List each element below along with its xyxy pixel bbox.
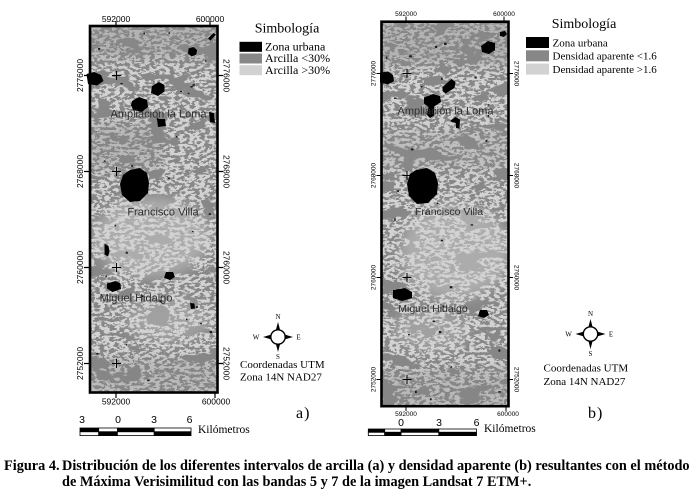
svg-text:Francisco Villa: Francisco Villa (127, 207, 199, 219)
svg-text:Coordenadas UTM: Coordenadas UTM (544, 363, 629, 375)
svg-text:2768000: 2768000 (75, 155, 85, 188)
svg-text:2752000: 2752000 (513, 367, 520, 393)
svg-text:592000: 592000 (102, 397, 131, 407)
svg-text:Coordenadas UTM: Coordenadas UTM (240, 359, 325, 371)
svg-text:2760000: 2760000 (513, 265, 520, 291)
svg-text:W: W (253, 334, 260, 342)
svg-text:Kilómetros: Kilómetros (484, 423, 536, 435)
svg-text:Simbología: Simbología (255, 22, 320, 37)
svg-text:N: N (588, 310, 593, 318)
svg-text:Zona 14N NAD27: Zona 14N NAD27 (544, 376, 626, 388)
svg-text:600000: 600000 (202, 397, 231, 407)
svg-text:b): b) (588, 405, 603, 422)
svg-text:2768000: 2768000 (371, 162, 378, 188)
svg-text:0: 0 (115, 414, 121, 426)
svg-text:2760000: 2760000 (371, 264, 378, 290)
svg-text:E: E (296, 334, 300, 342)
svg-text:3: 3 (436, 417, 442, 429)
svg-text:2752000: 2752000 (75, 347, 85, 380)
svg-text:2776000: 2776000 (371, 60, 378, 86)
svg-text:Zona urbana: Zona urbana (553, 37, 608, 49)
svg-text:2760000: 2760000 (75, 251, 85, 284)
svg-text:W: W (565, 331, 572, 339)
svg-text:Miguel Hidalgo: Miguel Hidalgo (398, 303, 468, 315)
svg-text:3: 3 (151, 414, 157, 426)
svg-text:E: E (609, 331, 613, 339)
svg-text:a): a) (296, 405, 310, 422)
svg-text:Ampliación la Loma: Ampliación la Loma (111, 109, 208, 121)
svg-text:Francisco Villa: Francisco Villa (415, 206, 483, 218)
svg-text:600000: 600000 (493, 11, 515, 18)
svg-text:2768000: 2768000 (222, 155, 232, 188)
svg-text:Densidad aparente <1.6: Densidad aparente <1.6 (553, 51, 658, 63)
svg-text:2776000: 2776000 (222, 59, 232, 92)
svg-text:2760000: 2760000 (222, 251, 232, 284)
svg-text:0: 0 (398, 417, 404, 429)
svg-text:600000: 600000 (196, 14, 225, 24)
svg-text:N: N (275, 313, 280, 321)
svg-text:Kilómetros: Kilómetros (198, 424, 250, 436)
svg-text:6: 6 (474, 417, 480, 429)
svg-text:Simbología: Simbología (552, 17, 617, 32)
svg-text:S: S (589, 350, 593, 358)
svg-text:Densidad aparente >1.6: Densidad aparente >1.6 (553, 64, 658, 76)
svg-text:Ampliación la Loma: Ampliación la Loma (398, 106, 495, 118)
svg-text:592000: 592000 (395, 11, 417, 18)
svg-text:Miguel Hidalgo: Miguel Hidalgo (100, 293, 173, 305)
svg-text:3: 3 (79, 414, 85, 426)
svg-text:Zona 14N NAD27: Zona 14N NAD27 (240, 372, 322, 384)
svg-text:6: 6 (187, 414, 193, 426)
svg-text:2776000: 2776000 (75, 59, 85, 92)
svg-text:2752000: 2752000 (222, 347, 232, 380)
svg-text:2768000: 2768000 (513, 163, 520, 189)
svg-text:2776000: 2776000 (513, 61, 520, 87)
svg-text:Arcilla >30%: Arcilla >30% (265, 63, 330, 77)
svg-text:592000: 592000 (102, 14, 131, 24)
svg-text:600000: 600000 (497, 411, 519, 418)
svg-text:2752000: 2752000 (371, 366, 378, 392)
